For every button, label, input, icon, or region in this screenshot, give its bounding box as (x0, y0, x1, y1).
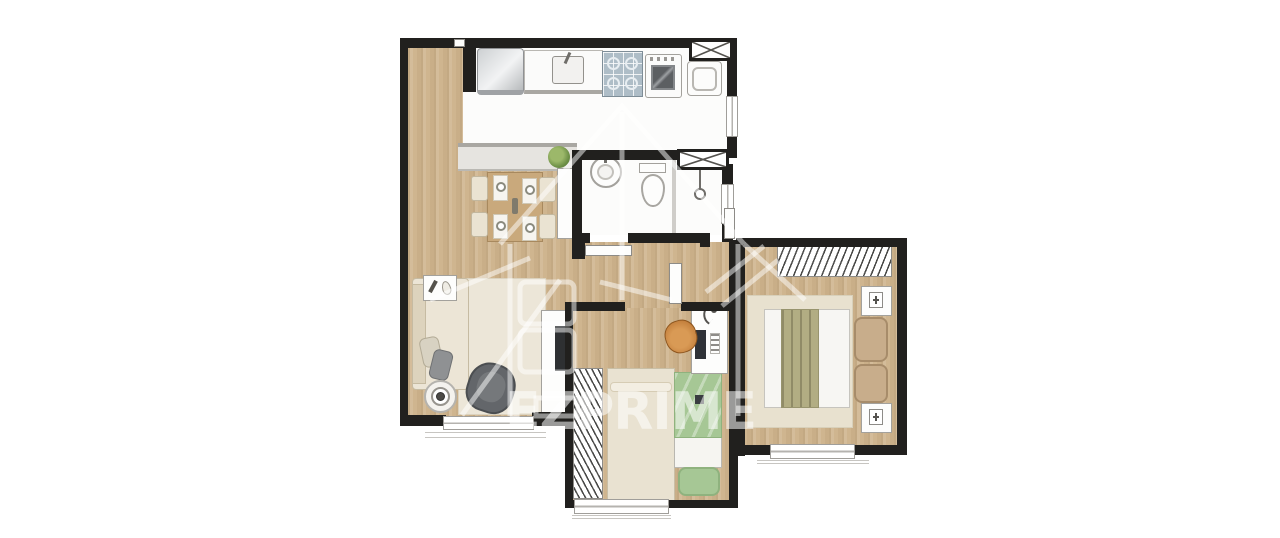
bedroom2-window (574, 499, 669, 514)
living-sliding-door (443, 416, 534, 430)
dining-chair (539, 177, 556, 202)
bedroom1-blanket (781, 309, 819, 408)
plate-icon (525, 185, 535, 195)
fridge (477, 48, 524, 95)
dining-chair (471, 212, 488, 237)
entry-door (454, 39, 465, 47)
wall-living-bottom-right (532, 412, 569, 426)
toilet-tank (639, 163, 666, 173)
wall-bathroom-door-stub (572, 233, 585, 259)
burner-icon (625, 77, 638, 90)
wall-kitchen-stub (463, 46, 476, 92)
bedroom1-sill (757, 460, 869, 464)
wall-bathroom-bottom-right (628, 233, 710, 243)
desk-pc (695, 395, 704, 404)
bedroom1-wardrobe (777, 246, 892, 277)
sofa-side-table (423, 275, 457, 301)
tv (555, 326, 565, 371)
bedroom2-green-blanket (674, 372, 722, 438)
floor-plan: EZPRIME (0, 0, 1280, 538)
bedroom2-sill (572, 515, 671, 519)
bedroom2-bed-pillow-line (610, 382, 672, 392)
desk-keyboard (710, 333, 720, 354)
bedroom2-door (669, 263, 682, 304)
side-round-table-center (436, 392, 445, 401)
burner-icon (625, 57, 638, 70)
bathroom-door (585, 245, 632, 256)
dining-chair (539, 214, 556, 239)
burner-icon (607, 77, 620, 90)
shower-head-icon (694, 188, 706, 200)
bedroom1-window (770, 444, 855, 459)
bedroom1-pillow (854, 364, 888, 403)
bathroom-sink-bowl (597, 164, 614, 180)
washing-machine-dials (650, 57, 676, 61)
laundry-tank-basin (692, 67, 717, 91)
wall-bathroom-left (572, 150, 582, 242)
living-terrace-sill (425, 432, 546, 438)
plant-icon (548, 146, 570, 168)
wall-shared-bedrooms (729, 240, 745, 456)
wall-top (400, 38, 737, 48)
plate-icon (496, 221, 506, 231)
wall-bedroom2-right-low (729, 455, 738, 508)
nightstand-lamp-icon (869, 292, 883, 308)
dining-chair (471, 176, 488, 201)
wall-left (400, 38, 408, 425)
washing-machine-door (651, 65, 675, 90)
bedroom2-wardrobe (573, 368, 603, 499)
kitchen-side-window (726, 96, 738, 137)
window-x-icon (689, 39, 733, 61)
wall-bathroom-top (572, 150, 682, 160)
wall-bedroom2-left (565, 302, 573, 508)
wall-living-bottom-left (400, 415, 446, 426)
nightstand-lamp-icon (869, 409, 883, 425)
wall-bedroom1-top-stub (700, 236, 710, 247)
wall-bedroom1-top (736, 238, 907, 247)
burner-icon (607, 57, 620, 70)
plate-icon (525, 223, 535, 233)
bedroom2-green-rug (678, 467, 720, 496)
table-centerpiece (512, 198, 518, 214)
plate-icon (496, 182, 506, 192)
wall-bedroom1-right (897, 238, 907, 455)
bedroom1-door (724, 208, 735, 239)
bedroom1-pillow (854, 317, 888, 362)
wall-bedroom2-top-left (565, 302, 625, 311)
window-x-icon (677, 149, 729, 170)
shower-divider (672, 160, 676, 236)
